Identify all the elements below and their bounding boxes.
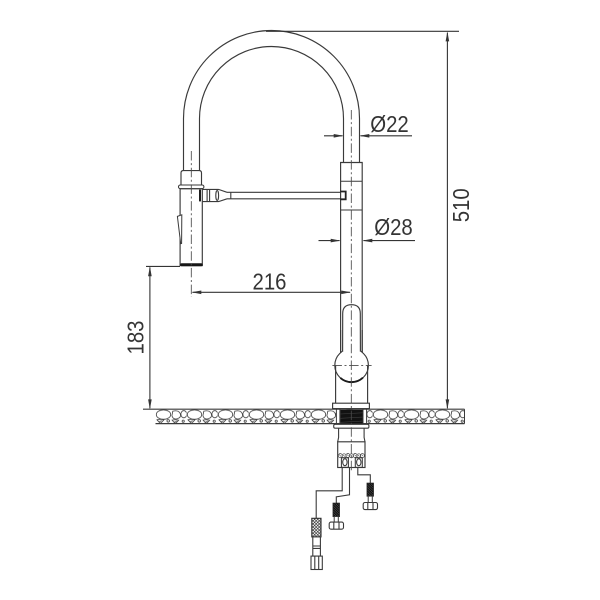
svg-text:510: 510 [447, 188, 474, 222]
svg-text:183: 183 [122, 321, 149, 355]
svg-text:216: 216 [253, 268, 287, 295]
svg-text:Ø22: Ø22 [370, 110, 408, 137]
svg-text:Ø28: Ø28 [374, 213, 412, 240]
